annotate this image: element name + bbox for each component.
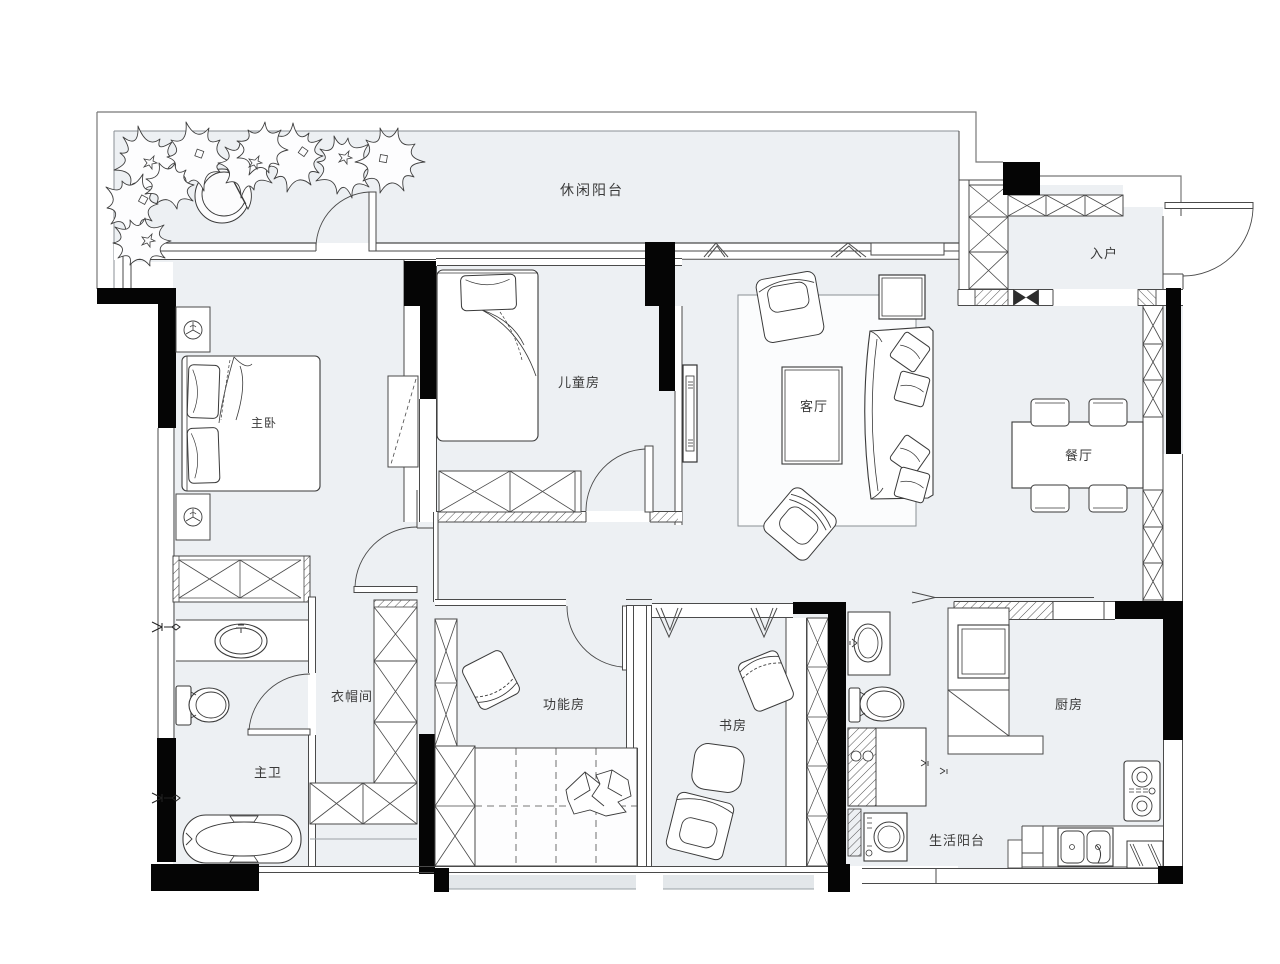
svg-text:厨房: 厨房 [1055,697,1083,712]
svg-text:入户: 入户 [1090,246,1118,261]
svg-text:主卧: 主卧 [251,416,277,430]
svg-text:衣帽间: 衣帽间 [331,689,373,704]
svg-text:客厅: 客厅 [800,399,828,414]
svg-text:儿童房: 儿童房 [558,375,600,390]
svg-text:休闲阳台: 休闲阳台 [560,182,624,198]
svg-text:功能房: 功能房 [543,697,585,712]
svg-text:书房: 书房 [719,718,747,733]
svg-text:主卫: 主卫 [254,765,282,780]
svg-text:生活阳台: 生活阳台 [929,833,985,848]
svg-text:餐厅: 餐厅 [1065,448,1093,463]
